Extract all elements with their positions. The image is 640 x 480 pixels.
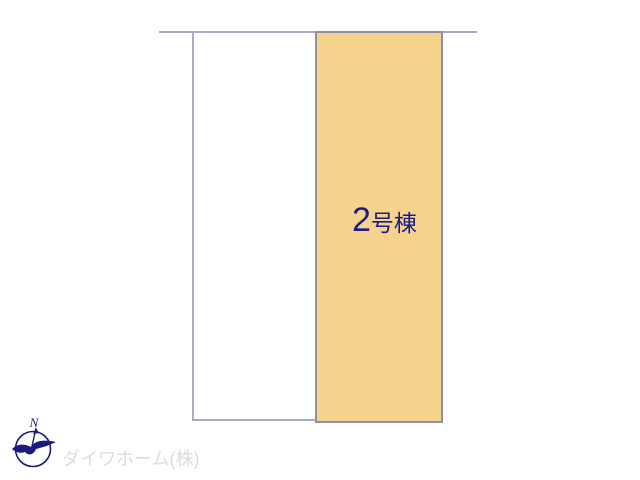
building-number: 2 — [352, 203, 371, 237]
company-watermark: ダイワホーム(株) — [62, 445, 199, 471]
site-plan-canvas: 2 号棟 N ダイワホーム(株) — [0, 0, 640, 480]
plot-empty — [192, 31, 317, 421]
compass-north-letter: N — [29, 415, 40, 430]
north-compass-icon: N — [10, 415, 60, 473]
building-suffix: 号棟 — [371, 212, 417, 235]
building-2-label: 2 号棟 — [352, 203, 417, 237]
